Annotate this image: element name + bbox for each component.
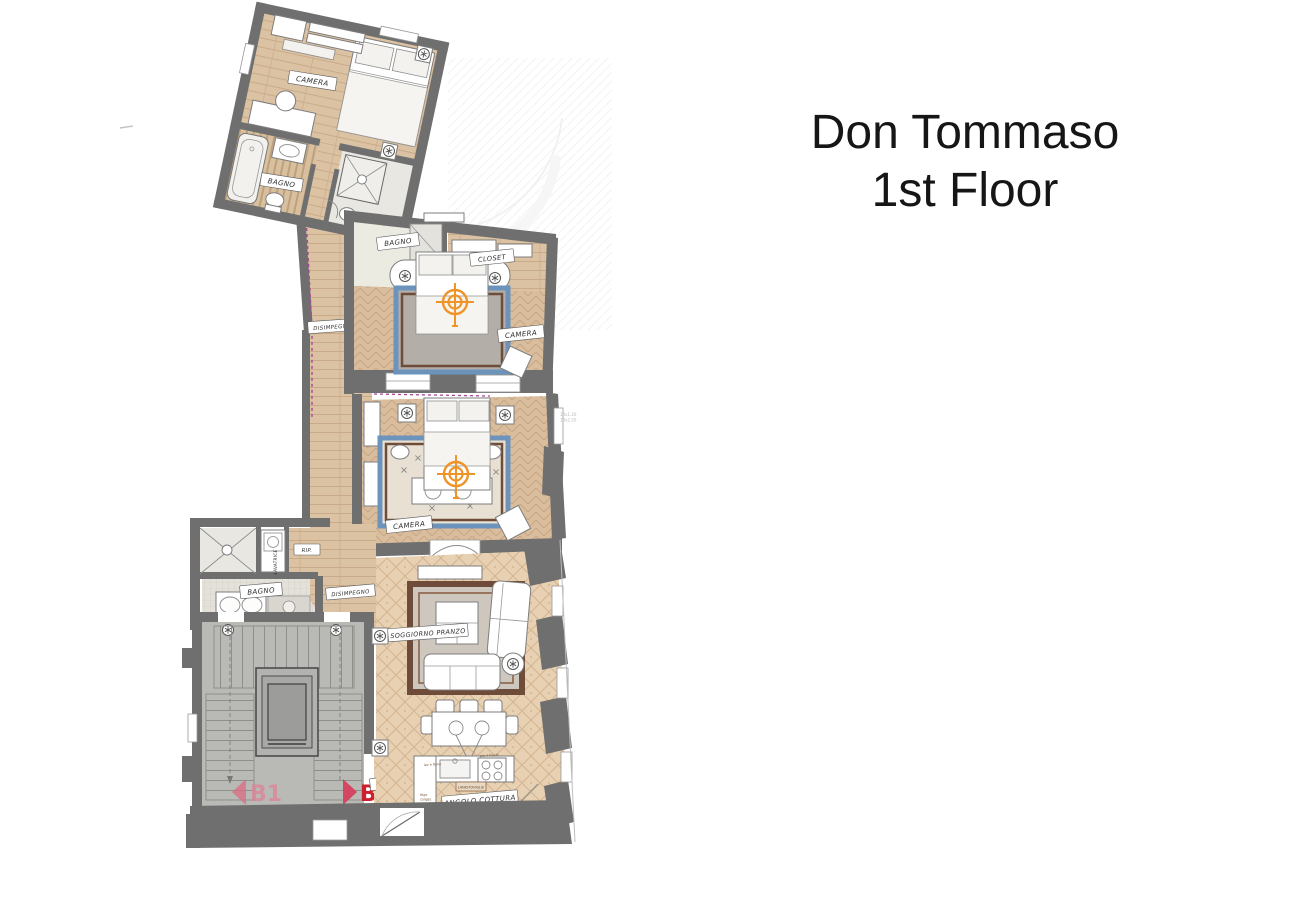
svg-text:RIP.: RIP. xyxy=(302,548,313,554)
title-line1: Don Tommaso xyxy=(811,106,1120,159)
title-line2: 1st Floor xyxy=(872,164,1059,217)
floor-plan-page: { "title": { "line1": "Don Tommaso", "li… xyxy=(0,0,1300,900)
washing-machine-icon: LAVATRICE xyxy=(261,530,285,575)
sofa-icon xyxy=(424,654,500,690)
section-living: SOGGIORNO PRANZO lav e forno pia 4 fuoch… xyxy=(372,540,575,842)
section-stairwell: B1 B2 xyxy=(182,612,392,814)
section-camera-lower: CAMERA 14x1.20 14x2.20 xyxy=(352,392,577,564)
label-lavatrice: LAVATRICE xyxy=(273,549,278,574)
label-rip: RIP. xyxy=(294,544,320,555)
stray-mark xyxy=(120,126,133,128)
unit-top: CAMERA BAGNO xyxy=(211,0,450,248)
stove-icon xyxy=(478,758,506,782)
elevator-icon xyxy=(256,668,318,756)
shower-icon xyxy=(337,155,387,205)
magenta-service-line xyxy=(374,394,490,396)
svg-text:14x2.20: 14x2.20 xyxy=(560,418,577,423)
dimension-note: 14x1.20 14x2.20 xyxy=(560,412,577,423)
label-dishwasher: LAVASTOVIGLIE xyxy=(456,782,486,791)
svg-text:14x1.20: 14x1.20 xyxy=(560,412,577,417)
kitchen-sink-icon xyxy=(440,760,470,778)
bottom-wall xyxy=(186,800,572,848)
svg-text:frigo: frigo xyxy=(420,793,427,797)
svg-text:congel.: congel. xyxy=(420,798,432,802)
svg-text:B1: B1 xyxy=(250,782,282,807)
svg-text:LAVASTOVIGLIE: LAVASTOVIGLIE xyxy=(458,786,485,790)
section-middle: BAGNO CLOSET CAMERA xyxy=(344,210,558,396)
sofa-icon xyxy=(487,580,531,659)
page-title: Don Tommaso 1st Floor xyxy=(811,106,1120,217)
floor-plan-canvas: DISIMPEGNO CAMERA xyxy=(0,0,1300,900)
